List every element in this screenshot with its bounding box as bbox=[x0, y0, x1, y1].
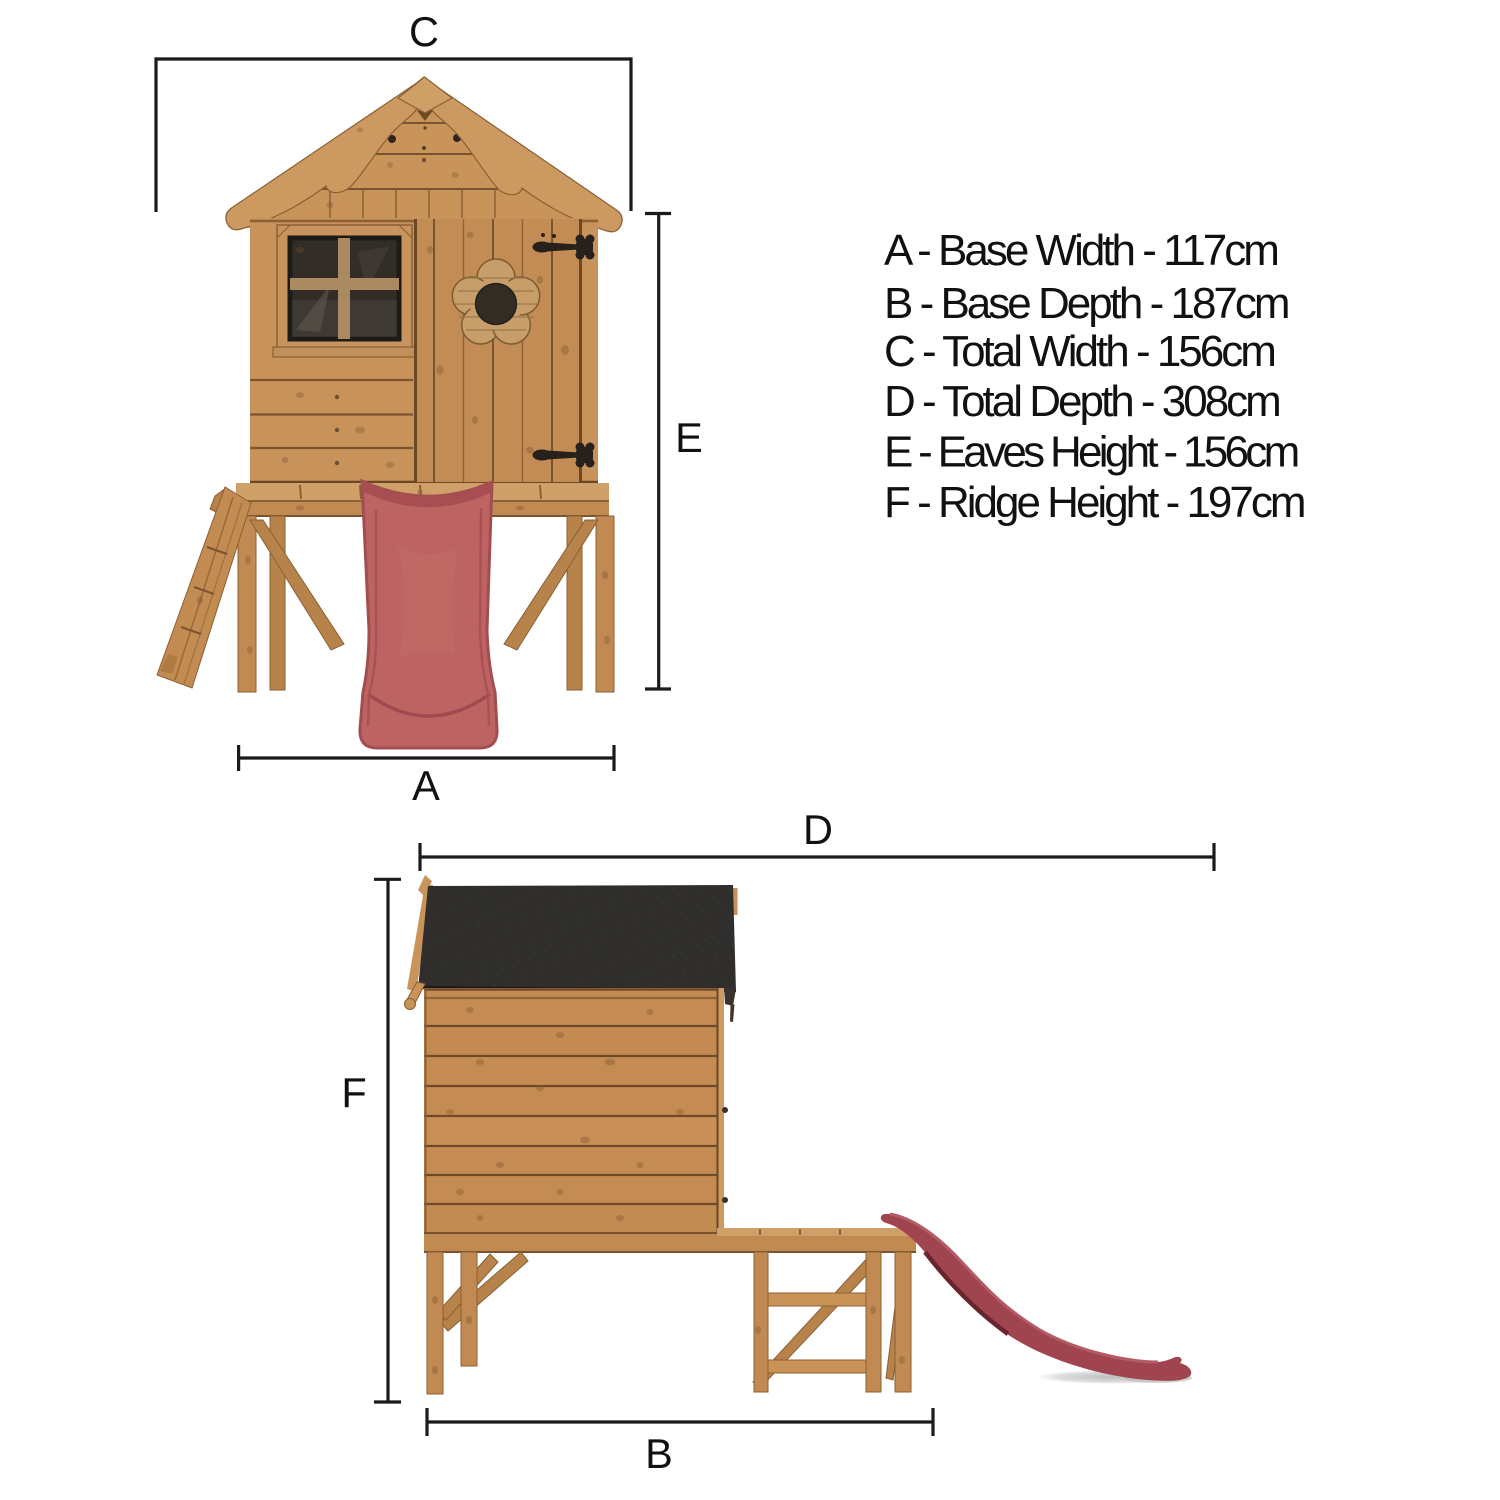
svg-text:C - Total Width - 156cm: C - Total Width - 156cm bbox=[884, 327, 1274, 376]
svg-text:D - Total Depth - 308cm: D - Total Depth - 308cm bbox=[884, 377, 1279, 426]
svg-text:A: A bbox=[412, 762, 440, 809]
svg-text:F: F bbox=[341, 1069, 366, 1116]
svg-text:B - Base Depth - 187cm: B - Base Depth - 187cm bbox=[884, 279, 1288, 328]
svg-text:D: D bbox=[803, 806, 833, 853]
svg-text:A - Base Width - 117cm: A - Base Width - 117cm bbox=[884, 226, 1277, 275]
svg-text:E - Eaves Height - 156cm: E - Eaves Height - 156cm bbox=[884, 428, 1298, 477]
svg-text:C: C bbox=[409, 8, 439, 55]
svg-text:E: E bbox=[675, 414, 703, 461]
svg-text:B: B bbox=[645, 1430, 673, 1477]
svg-text:F - Ridge Height - 197cm: F - Ridge Height - 197cm bbox=[884, 478, 1304, 527]
